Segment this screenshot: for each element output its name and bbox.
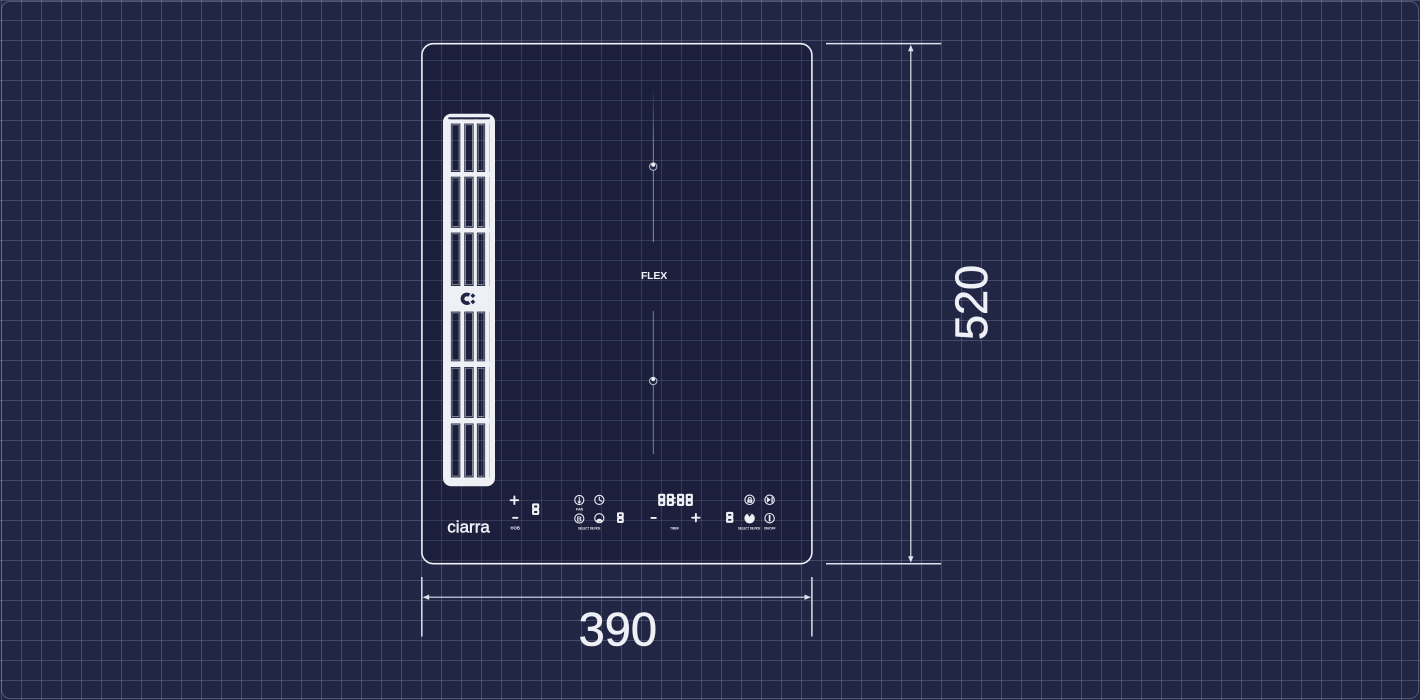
svg-text:ciarra: ciarra (447, 518, 490, 537)
svg-text:B: B (577, 516, 582, 523)
svg-text:HOB: HOB (511, 525, 520, 530)
svg-text:TIMER: TIMER (670, 525, 678, 530)
svg-text:390: 390 (579, 603, 657, 656)
svg-text:ON/OFF: ON/OFF (764, 526, 776, 531)
svg-text:FAN: FAN (576, 506, 583, 511)
svg-text:FLEX: FLEX (641, 270, 667, 282)
svg-text:SELECT DEVICE: SELECT DEVICE (738, 526, 761, 531)
svg-text:SELECT DEVICE: SELECT DEVICE (578, 525, 601, 530)
svg-text:520: 520 (946, 265, 997, 340)
